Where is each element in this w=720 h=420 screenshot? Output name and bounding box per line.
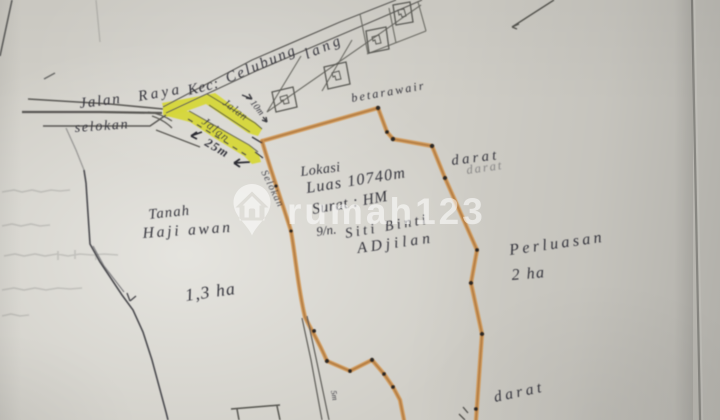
svg-text:Celubung: Celubung: [223, 42, 299, 86]
svg-text:lang: lang: [302, 32, 346, 63]
svg-text:1,3 ha: 1,3 ha: [184, 278, 237, 305]
svg-text:selokan: selokan: [74, 117, 130, 136]
svg-text:Perluasan: Perluasan: [507, 229, 606, 259]
svg-text:2 ha: 2 ha: [511, 264, 546, 284]
svg-text:5m: 5m: [329, 390, 340, 401]
svg-text:Jalan: Jalan: [79, 91, 123, 112]
svg-text:10m: 10m: [248, 99, 266, 118]
svg-text:darat: darat: [492, 379, 546, 406]
svg-text:betarawair: betarawair: [350, 78, 427, 105]
svg-text:rumah123: rumah123: [287, 191, 486, 232]
svg-text:Tanah: Tanah: [148, 203, 191, 223]
